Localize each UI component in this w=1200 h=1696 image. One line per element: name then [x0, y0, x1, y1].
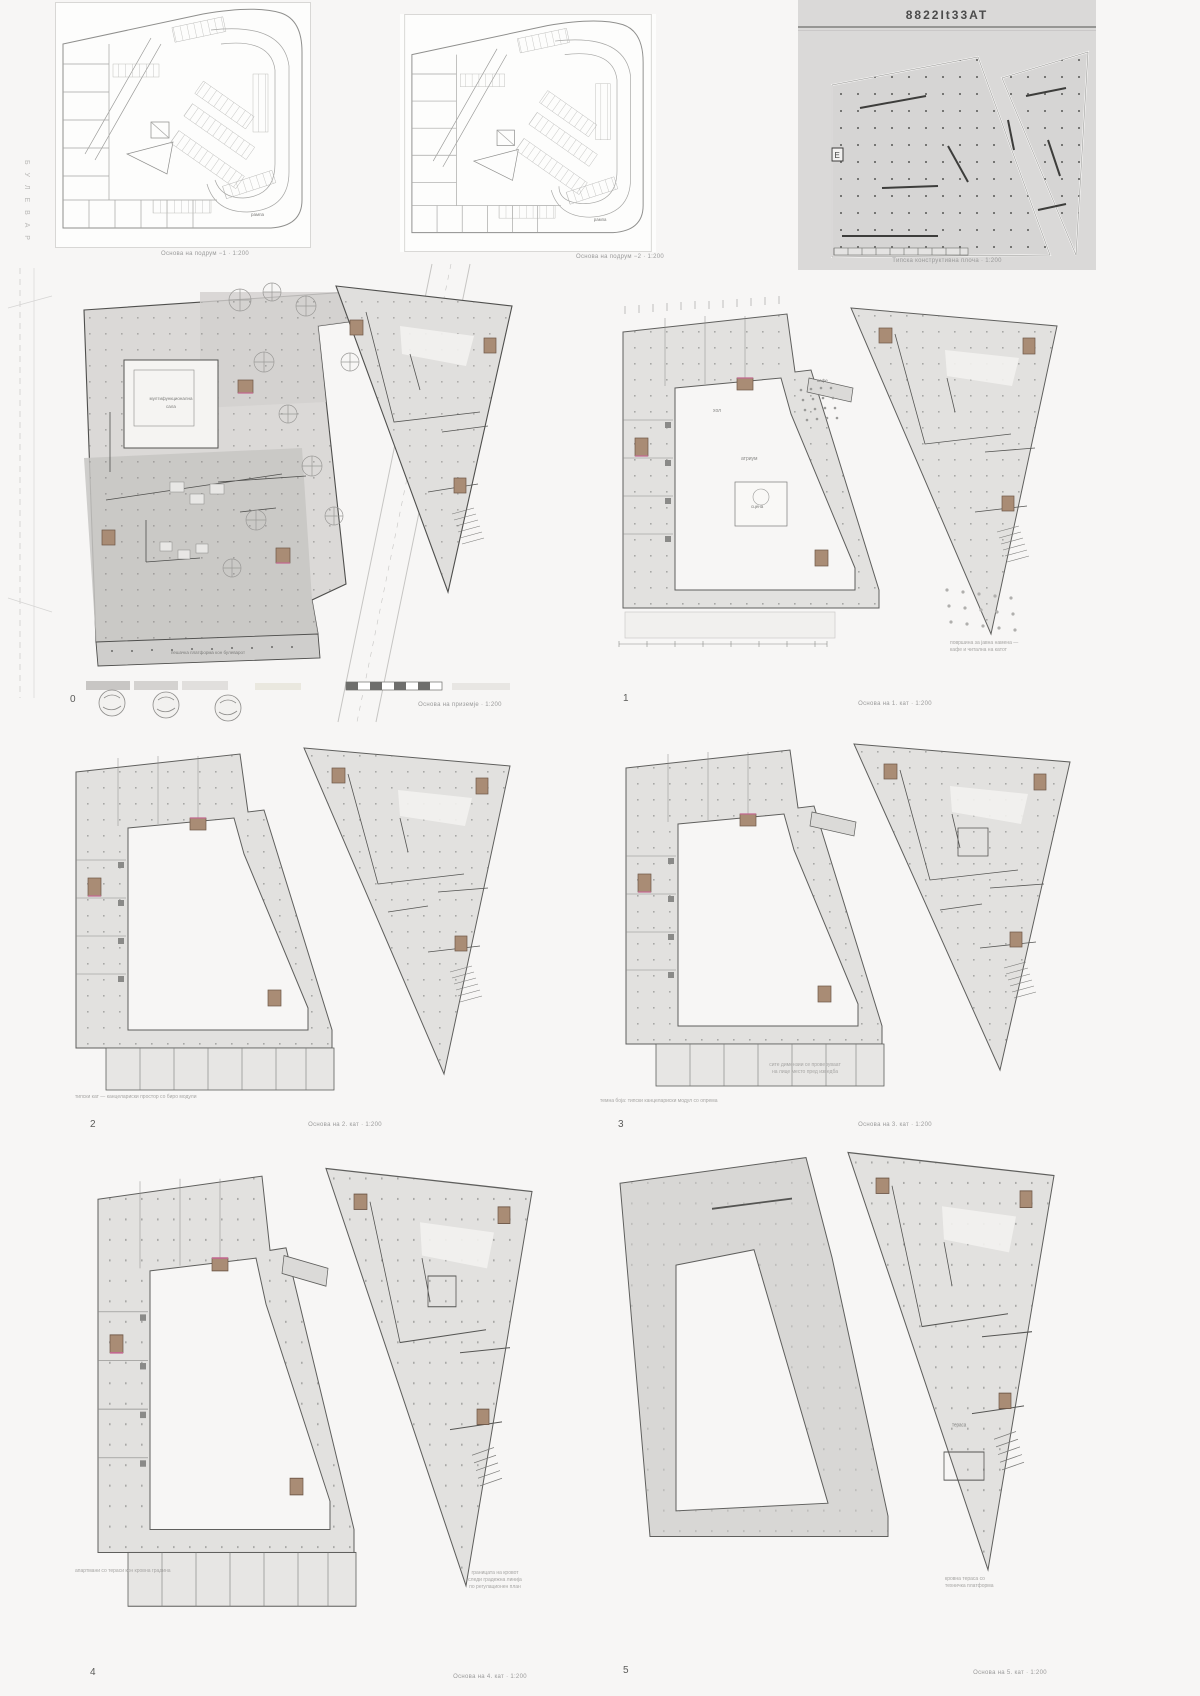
floor3-number: 3 [618, 1119, 624, 1130]
floor5-number: 5 [623, 1665, 629, 1676]
floor2-note: типски кат — канцелариски простор со бир… [75, 1094, 275, 1101]
floor0-caption: Основа на приземје · 1:200 [380, 702, 540, 710]
basement2-plan-drawing: рампа [400, 14, 656, 252]
basement1-ramp-label: рампа [251, 212, 265, 217]
floor4-caption: Основа на 4. кат · 1:200 [400, 1674, 580, 1682]
floor1-stage-label: сцена [751, 504, 764, 509]
floor1-plan-drawing: хол атриум сцена кафе [595, 292, 1070, 662]
basement1-caption: Основа на подрум −1 · 1:200 [80, 251, 330, 259]
floor1-hall-label: хол [713, 408, 721, 414]
floor3-note: темна боја: типски канцелариски модул со… [600, 1098, 800, 1105]
floor1-number: 1 [623, 693, 629, 704]
floor3-note-2: сите димензии се проверуваатна лице мест… [725, 1062, 885, 1076]
basement1-panel: рампа [55, 2, 311, 248]
basement2-panel: рампа [400, 14, 656, 252]
floor0-terrace-label: пешачка платформа кон булеварот [171, 650, 245, 655]
floor2-number: 2 [90, 1119, 96, 1130]
basement2-caption: Основа на подрум −2 · 1:200 [495, 254, 745, 262]
floor4-note-2: границата на кровотследи градежна линија… [440, 1570, 550, 1590]
floor2-caption: Основа на 2. кат · 1:200 [265, 1122, 425, 1130]
basement2-ramp-label: рампа [594, 217, 607, 222]
floor4-number: 4 [90, 1667, 96, 1678]
floor0-hall-label-1: мултифункционална [149, 396, 193, 401]
tree-detail-symbols [99, 690, 241, 721]
titleblock-panel: 8822It33AT E [798, 0, 1096, 270]
floor5-terrace-label: тераса [952, 1422, 966, 1429]
floor1-cafe-label: кафе [817, 378, 828, 383]
drawing-sheet: рампа Основа на подрум −1 · 1:200 [0, 0, 1200, 1696]
floor4-note: апартмани со тераси кон кровна градина [75, 1568, 255, 1575]
floor0-hall-label-2: сала [166, 404, 176, 409]
slab-plan-drawing: E [798, 0, 1096, 270]
floor1-atrium-label: атриум [741, 456, 758, 462]
floor1-caption: Основа на 1. кат · 1:200 [810, 701, 980, 709]
floor0-number: 0 [70, 694, 76, 705]
street-label: Б У Л Е В А Р [23, 160, 30, 243]
floor5-plan-drawing: тераса [592, 1132, 1092, 1647]
floor5-caption: Основа на 5. кат · 1:200 [930, 1670, 1090, 1678]
grid-marker-label: E [835, 151, 840, 160]
floor3-caption: Основа на 3. кат · 1:200 [810, 1122, 980, 1130]
floor5-note: кровна тераса сотехничка платформа [945, 1576, 1075, 1590]
floor2-plan-drawing [48, 732, 523, 1132]
slab-caption: Типска конструктивна плоча · 1:200 [822, 258, 1072, 266]
floor1-note: површина за јавна намена —кафе и читална… [950, 640, 1080, 654]
basement1-plan-drawing: рампа [55, 2, 311, 248]
floor0-legend-bars [86, 681, 510, 690]
floor0-plan-drawing: мултифункционална сала [50, 262, 530, 727]
